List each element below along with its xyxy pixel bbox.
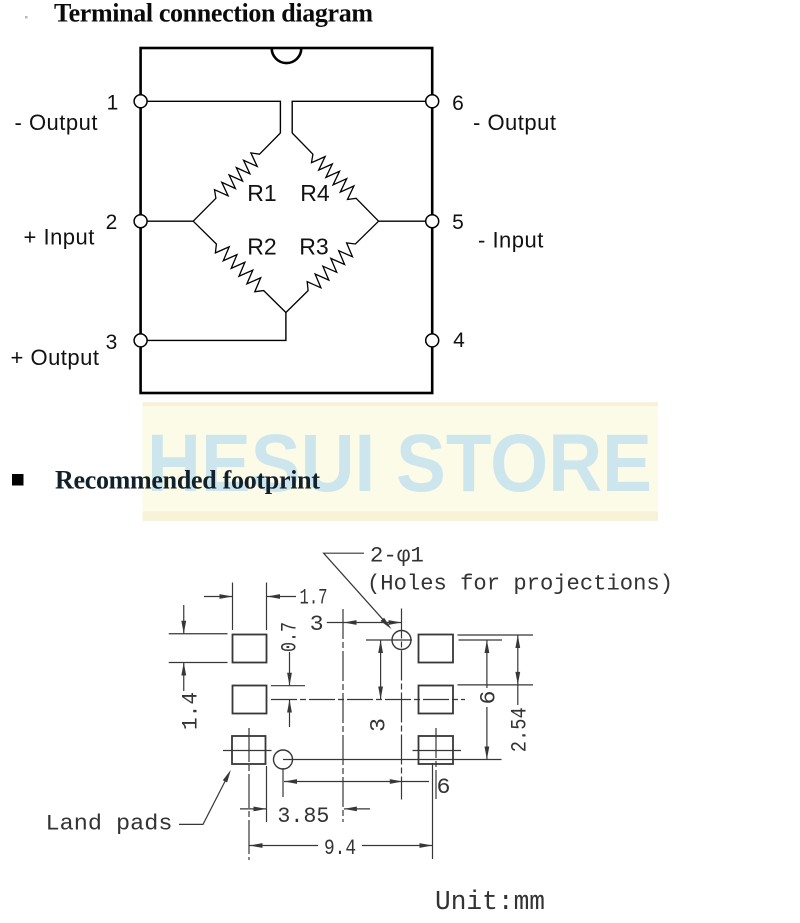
svg-text:2-φ1: 2-φ1 xyxy=(370,544,424,569)
svg-text:6: 6 xyxy=(477,691,502,705)
svg-text:2: 2 xyxy=(106,211,118,234)
svg-text:HESUI STORE: HESUI STORE xyxy=(147,418,652,509)
svg-text:R4: R4 xyxy=(300,180,330,206)
svg-text:R2: R2 xyxy=(247,234,276,260)
svg-text:- Input: - Input xyxy=(478,228,544,253)
svg-text:Land pads: Land pads xyxy=(46,812,173,837)
svg-text:2.54: 2.54 xyxy=(508,707,533,752)
svg-text:6: 6 xyxy=(437,775,451,800)
svg-text:3: 3 xyxy=(106,331,118,354)
svg-text:3: 3 xyxy=(310,612,324,637)
svg-text:1: 1 xyxy=(107,92,119,115)
svg-text:4: 4 xyxy=(453,329,465,352)
svg-text:1.4: 1.4 xyxy=(179,692,204,730)
svg-text:Recommended footprint: Recommended footprint xyxy=(55,466,320,495)
svg-text:+ Output: + Output xyxy=(11,345,100,370)
svg-text:Unit:mm: Unit:mm xyxy=(435,888,545,918)
svg-text:9.4: 9.4 xyxy=(324,836,356,861)
svg-text:(Holes for projections): (Holes for projections) xyxy=(367,572,673,597)
svg-text:5: 5 xyxy=(452,211,464,234)
svg-text:- Output: - Output xyxy=(473,110,556,135)
svg-text:+ Input: + Input xyxy=(24,225,95,250)
svg-text:3.85: 3.85 xyxy=(277,804,329,829)
svg-text:0.7: 0.7 xyxy=(278,622,303,652)
svg-text:3: 3 xyxy=(367,718,392,732)
svg-text:R1: R1 xyxy=(247,180,276,206)
svg-text:Terminal connection diagram: Terminal connection diagram xyxy=(54,0,373,28)
svg-text:R3: R3 xyxy=(299,234,328,260)
svg-text:- Output: - Output xyxy=(15,110,98,135)
svg-text:6: 6 xyxy=(452,92,464,115)
svg-text:1.7: 1.7 xyxy=(300,586,328,611)
